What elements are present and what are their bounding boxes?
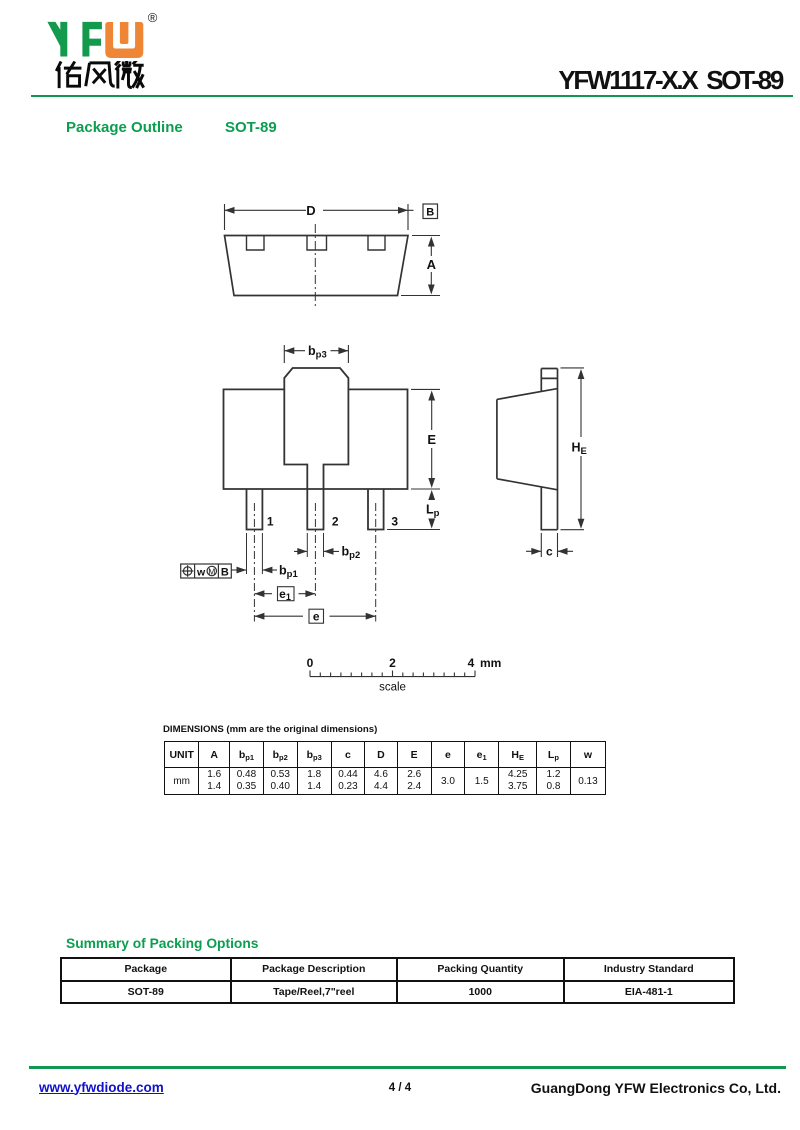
svg-text:bp3: bp3 — [308, 344, 327, 361]
svg-text:HE: HE — [572, 441, 587, 458]
svg-text:A: A — [427, 257, 437, 272]
svg-text:Lp: Lp — [426, 503, 440, 520]
svg-text:0: 0 — [307, 656, 314, 670]
svg-text:e1: e1 — [279, 587, 291, 602]
svg-text:mm: mm — [480, 656, 501, 670]
svg-text:3: 3 — [391, 515, 398, 529]
svg-text:2: 2 — [389, 656, 396, 670]
svg-text:2: 2 — [332, 515, 339, 529]
svg-text:w: w — [196, 566, 206, 578]
svg-text:E: E — [427, 432, 436, 447]
svg-text:1: 1 — [267, 515, 274, 529]
svg-text:bp1: bp1 — [279, 564, 298, 581]
svg-text:B: B — [221, 567, 229, 579]
svg-text:B: B — [426, 207, 434, 219]
svg-text:4: 4 — [468, 656, 475, 670]
svg-text:scale: scale — [379, 682, 406, 694]
svg-text:c: c — [546, 545, 553, 559]
svg-text:e: e — [313, 610, 320, 624]
svg-text:bp2: bp2 — [342, 545, 361, 562]
svg-text:M: M — [208, 566, 215, 576]
svg-text:D: D — [306, 203, 315, 218]
